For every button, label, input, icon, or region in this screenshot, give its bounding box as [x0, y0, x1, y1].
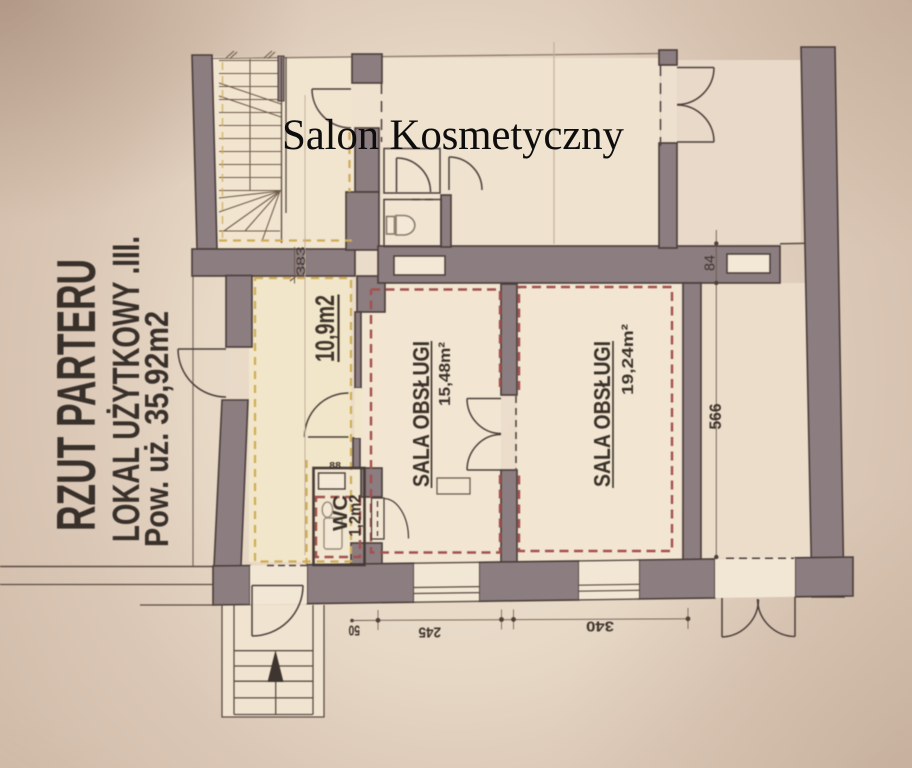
svg-text:19,24m²: 19,24m² — [620, 324, 637, 395]
svg-text:566: 566 — [706, 404, 725, 430]
svg-text:245: 245 — [419, 624, 442, 640]
svg-text:Pow. uż. 35,92m2: Pow. uż. 35,92m2 — [138, 311, 175, 547]
svg-text:SALA OBSŁUGI: SALA OBSŁUGI — [408, 341, 434, 487]
svg-text:15,48m²: 15,48m² — [437, 342, 454, 406]
svg-text:1,2m2: 1,2m2 — [346, 495, 365, 537]
svg-text:84: 84 — [703, 255, 719, 271]
svg-text:50: 50 — [349, 622, 361, 638]
svg-text:383: 383 — [296, 247, 308, 276]
svg-text:SALA OBSŁUGI: SALA OBSŁUGI — [589, 341, 615, 487]
svg-text:RZUT PARTERU: RZUT PARTERU — [45, 259, 107, 531]
svg-text:88: 88 — [329, 461, 341, 472]
svg-text:10,9m2: 10,9m2 — [310, 295, 340, 362]
svg-text:340: 340 — [586, 618, 614, 634]
